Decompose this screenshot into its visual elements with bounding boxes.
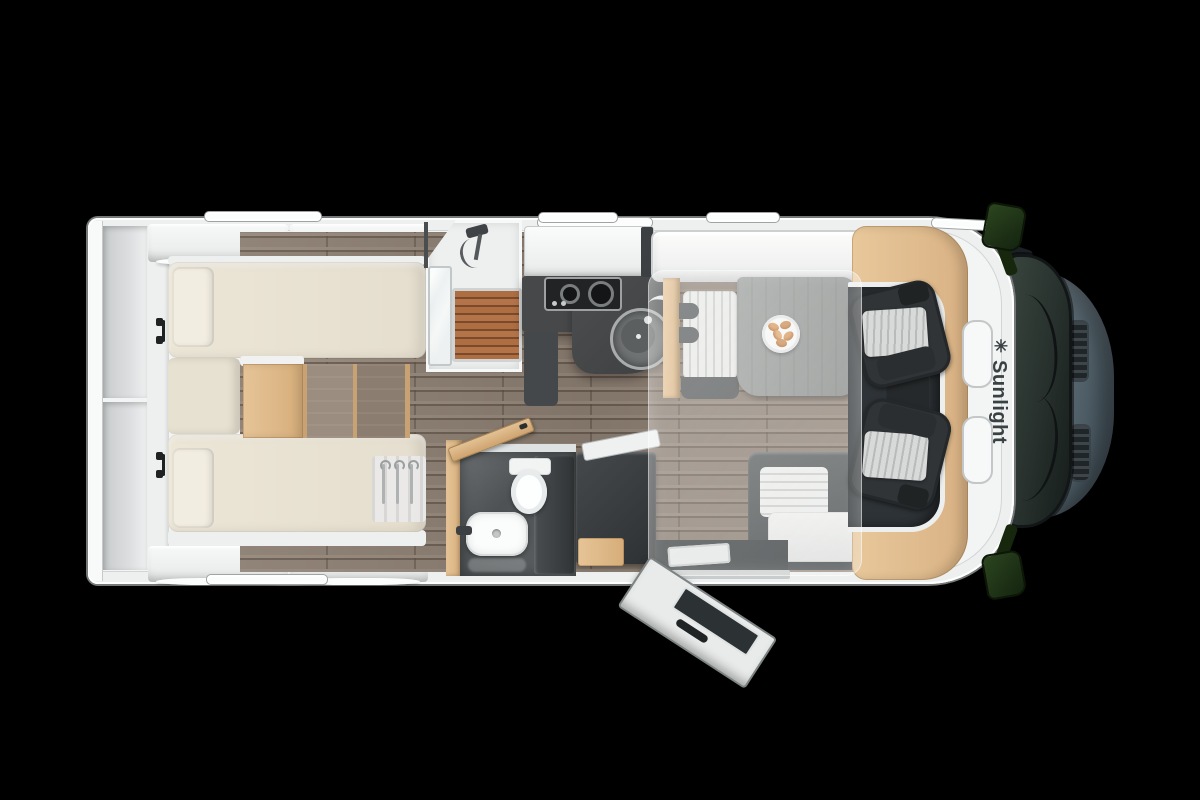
stove-icon [544,277,622,311]
roof-skylight-bar [706,212,780,223]
basin-reflection [468,558,526,572]
pillow [172,267,214,347]
door-handle-icon [519,422,528,430]
step-floor [307,364,353,438]
side-mirror-top [980,201,1027,253]
seat-striped-cover [862,431,929,481]
stove-knob [561,301,566,306]
side-mirror-bottom [980,549,1027,601]
hanger-icon [382,464,385,504]
motorhome-floorplan: ✳ Sunlight [0,0,1200,800]
rear-wardrobe-bottom [103,402,153,570]
basin-faucet-icon [456,526,472,535]
drop-down-bed-overlay [648,270,862,576]
shower-teak-grate [452,288,522,362]
stove-knob [552,301,557,306]
wardrobe-hangers [372,456,426,522]
hanger-icon [410,464,413,504]
entry-wood-step [578,538,624,566]
roof-skylight-bar [538,212,618,223]
hood-vent-bottom [1070,424,1091,482]
bed-frame-edge [168,530,426,546]
rear-wardrobe-top [103,226,153,398]
roof-skylight-bar [206,574,328,585]
hanger-icon [396,464,399,504]
middle-cushion [168,358,240,434]
sink-drain [636,334,641,339]
cabinet-handle-icon [156,452,163,478]
shower-glass-door [428,266,452,366]
washbasin [466,512,528,556]
kitchen-overhead-cabinet [524,226,654,278]
kitchen-counter-return [524,332,558,406]
pillow [172,448,214,528]
step-divider [405,364,410,438]
wood-step-platform [243,364,303,438]
shower-wall-line [424,222,428,268]
toilet [511,470,547,514]
brand-logo-text: Sunlight [988,360,1010,472]
roof-skylight-bar [204,211,322,222]
step-floor [357,364,405,438]
headboard-cabinet [147,226,169,570]
rear-wall [89,221,102,581]
burner-icon [588,281,614,307]
cabinet-handle-icon [156,318,163,344]
sunlight-star-icon: ✳ [989,337,1013,357]
